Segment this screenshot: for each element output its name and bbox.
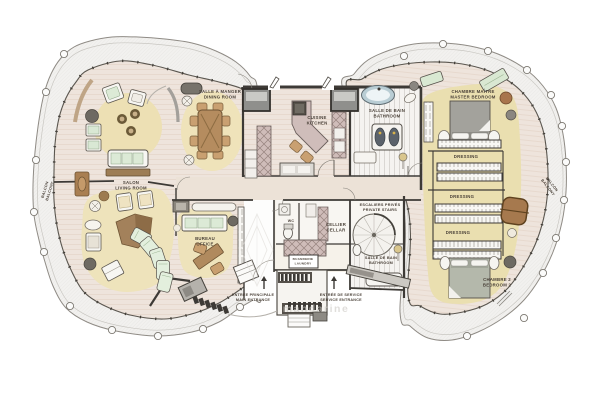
svg-text:DRESSING: DRESSING: [454, 154, 479, 159]
svg-text:ESCALIERS PRIVÉS: ESCALIERS PRIVÉS: [360, 202, 401, 207]
svg-text:WC: WC: [288, 219, 295, 223]
svg-text:KITCHEN: KITCHEN: [307, 121, 328, 126]
svg-text:OFFICE: OFFICE: [196, 242, 213, 247]
svg-text:BUREAU: BUREAU: [195, 236, 215, 241]
svg-text:BUANDERIE: BUANDERIE: [293, 257, 314, 261]
svg-text:DINING ROOM: DINING ROOM: [204, 95, 237, 100]
svg-text:MAIN ENTRANCE: MAIN ENTRANCE: [236, 298, 270, 302]
svg-text:DRESSING: DRESSING: [446, 230, 471, 235]
svg-text:PRIVATE STAIRS: PRIVATE STAIRS: [363, 208, 397, 212]
svg-text:DRESSING: DRESSING: [450, 194, 475, 199]
svg-text:LAUNDRY: LAUNDRY: [295, 261, 312, 265]
svg-text:BEDROOM 2: BEDROOM 2: [483, 283, 512, 288]
svg-text:CUISINE: CUISINE: [307, 115, 326, 120]
svg-text:BATHROOM: BATHROOM: [374, 114, 401, 119]
svg-text:mandarine: mandarine: [283, 303, 350, 315]
svg-text:SALLE DE BAIN: SALLE DE BAIN: [365, 256, 397, 260]
svg-text:SALLE DE BAIN: SALLE DE BAIN: [369, 108, 405, 113]
svg-text:SALLE À MANGER: SALLE À MANGER: [199, 89, 242, 94]
svg-text:BATHROOM: BATHROOM: [369, 261, 393, 265]
svg-text:ENTRÉE DE SERVICE: ENTRÉE DE SERVICE: [320, 292, 363, 297]
svg-text:CHAMBRE MAÎTRE: CHAMBRE MAÎTRE: [451, 89, 494, 94]
svg-text:CELLIER: CELLIER: [326, 222, 347, 227]
svg-text:CHAMBRE 2: CHAMBRE 2: [483, 277, 511, 282]
svg-text:MASTER BEDROOM: MASTER BEDROOM: [450, 95, 495, 100]
svg-text:CELLAR: CELLAR: [327, 228, 347, 233]
svg-text:SERVICE ENTRANCE: SERVICE ENTRANCE: [320, 298, 362, 302]
svg-text:SALON: SALON: [123, 180, 139, 185]
svg-text:LIVING ROOM: LIVING ROOM: [115, 186, 147, 191]
svg-text:ENTRÉE PRINCIPALE: ENTRÉE PRINCIPALE: [232, 292, 275, 297]
